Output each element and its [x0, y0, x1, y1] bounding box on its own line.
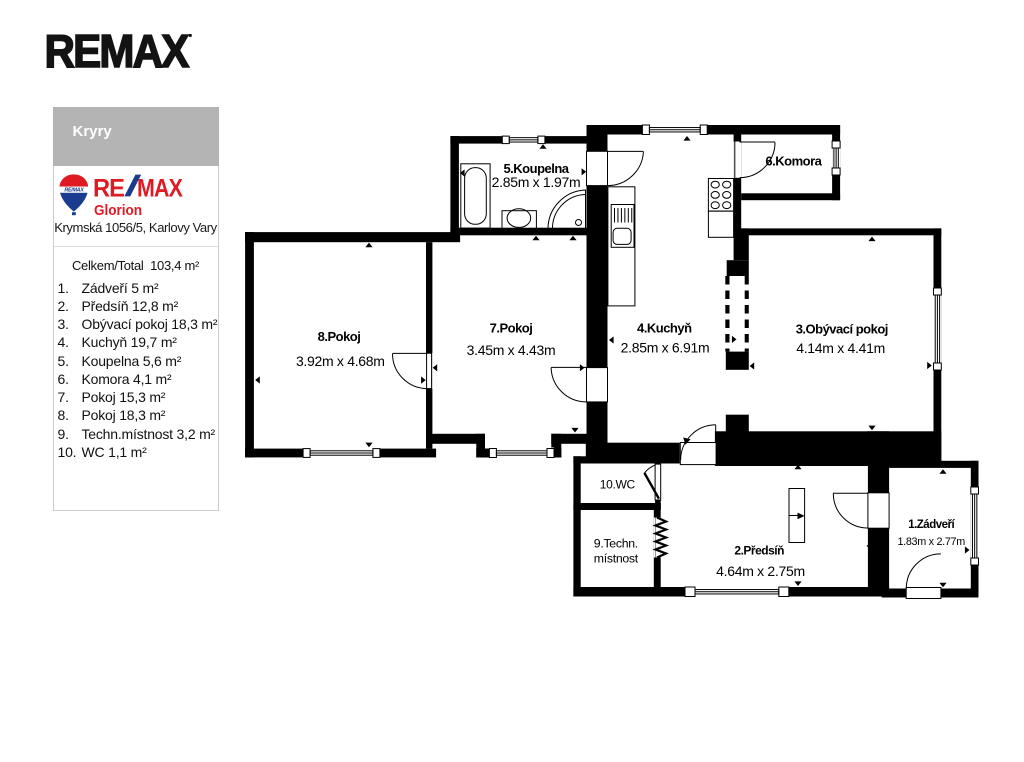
svg-text:3.Obývací pokoj: 3.Obývací pokoj — [796, 322, 888, 337]
svg-text:6.Komora: 6.Komora — [765, 154, 822, 169]
svg-text:4.14m x 4.41m: 4.14m x 4.41m — [796, 340, 885, 356]
svg-text:1.Zádveří: 1.Zádveří — [908, 519, 955, 531]
svg-text:4.64m x 2.75m: 4.64m x 2.75m — [716, 563, 805, 579]
svg-text:místnost: místnost — [594, 552, 639, 566]
svg-text:1.83m x 2.77m: 1.83m x 2.77m — [897, 536, 965, 548]
svg-text:2.85m x 1.97m: 2.85m x 1.97m — [492, 174, 581, 190]
svg-text:3.92m x 4.68m: 3.92m x 4.68m — [296, 353, 385, 369]
svg-text:8.Pokoj: 8.Pokoj — [318, 329, 361, 344]
svg-text:4.Kuchyň: 4.Kuchyň — [637, 321, 692, 336]
svg-text:10.WC: 10.WC — [600, 478, 636, 492]
svg-text:2.Předsíň: 2.Předsíň — [734, 544, 784, 558]
svg-text:2.85m x 6.91m: 2.85m x 6.91m — [621, 339, 710, 355]
svg-text:7.Pokoj: 7.Pokoj — [490, 321, 533, 336]
svg-text:3.45m x 4.43m: 3.45m x 4.43m — [467, 342, 556, 358]
svg-text:9.Techn.: 9.Techn. — [594, 537, 638, 551]
